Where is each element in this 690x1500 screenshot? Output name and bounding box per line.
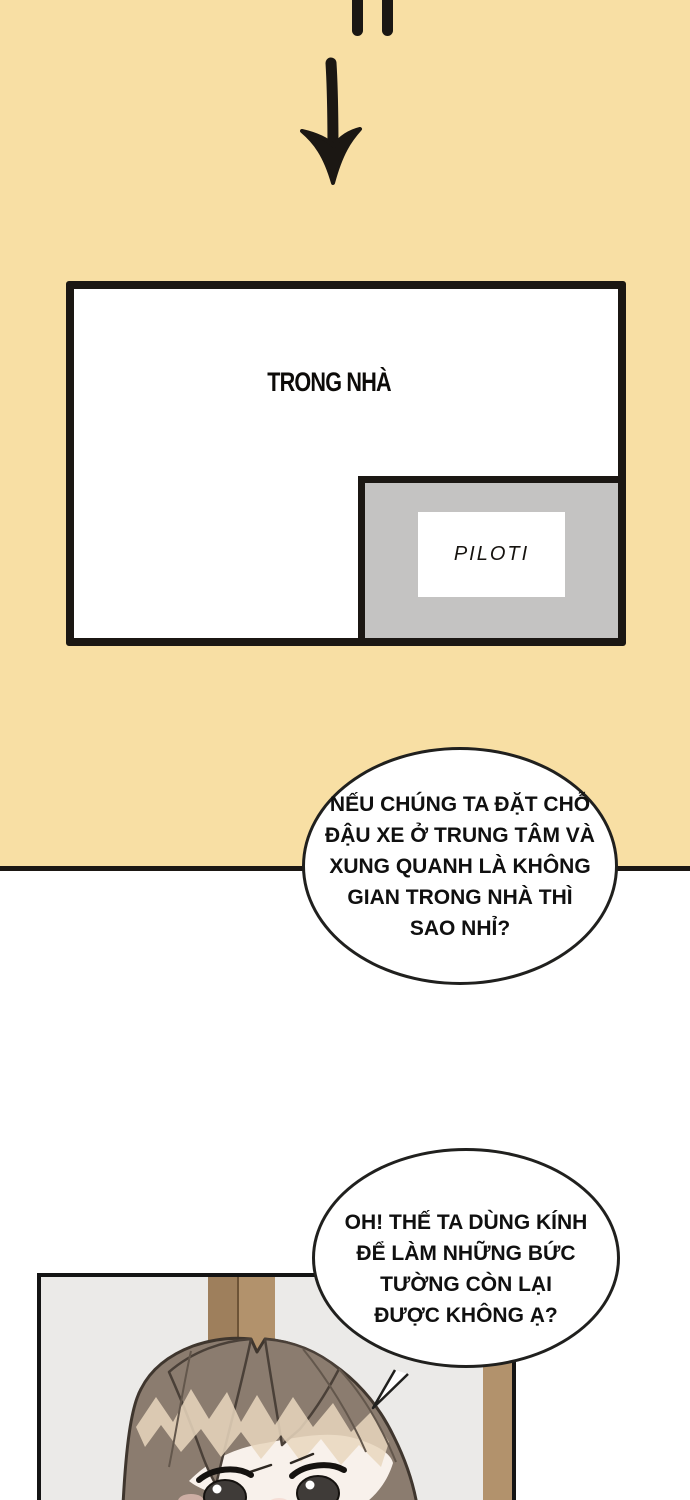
speech-bubble-2: OH! THẾ TA DÙNG KÍNH ĐỂ LÀM NHỮNG BỨC TƯ… — [312, 1148, 620, 1368]
bubble1-line: GIAN TRONG NHÀ THÌ — [347, 882, 572, 913]
bubble1-line: ĐẬU XE Ở TRUNG TÂM VÀ — [325, 820, 595, 851]
bubble2-line: TƯỜNG CÒN LẠI — [380, 1269, 552, 1300]
double-bar-icon — [382, 0, 393, 36]
double-bar-icon — [352, 0, 363, 36]
bubble1-line: SAO NHỈ? — [410, 913, 510, 944]
bubble2-line: ĐỂ LÀM NHỮNG BỨC — [356, 1238, 575, 1269]
bubble1-line: XUNG QUANH LÀ KHÔNG — [329, 851, 590, 882]
arrow-down-icon — [290, 55, 380, 190]
top-panel: TRONG NHÀ PILOTI — [0, 0, 690, 871]
comic-page: TRONG NHÀ PILOTI — [0, 0, 690, 1500]
speech-bubble-tail — [350, 1340, 430, 1420]
bubble2-line: ĐƯỢC KHÔNG Ạ? — [374, 1300, 558, 1331]
bubble1-line: NẾU CHÚNG TA ĐẶT CHỖ — [330, 789, 590, 820]
indoor-area-label: TRONG NHÀ — [111, 367, 546, 398]
bubble2-line: OH! THẾ TA DÙNG KÍNH — [345, 1207, 588, 1238]
floor-plan-diagram: TRONG NHÀ PILOTI — [66, 281, 626, 646]
piloti-label: PILOTI — [454, 543, 529, 566]
piloti-label-box: PILOTI — [418, 512, 565, 597]
speech-bubble-1: NẾU CHÚNG TA ĐẶT CHỖ ĐẬU XE Ở TRUNG TÂM … — [302, 747, 618, 985]
